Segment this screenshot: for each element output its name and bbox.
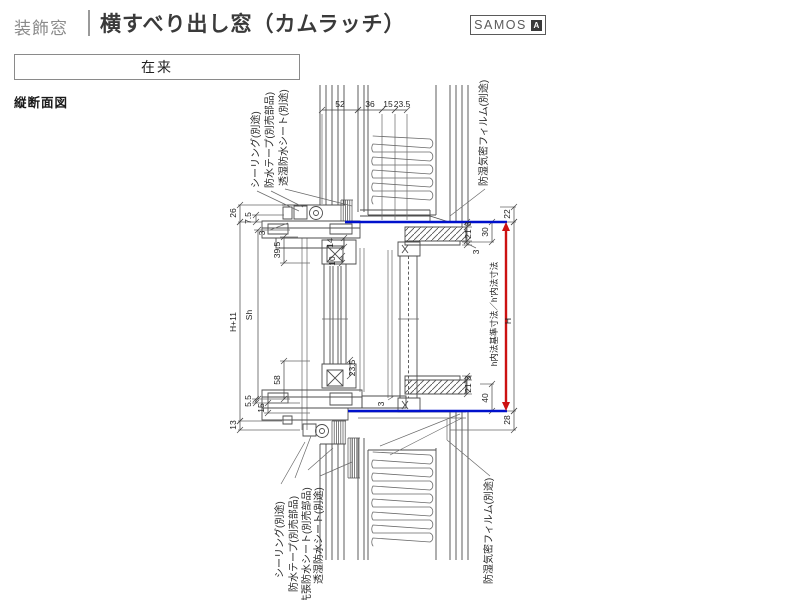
sill-hatch-strip bbox=[332, 421, 346, 444]
screen-top-rail bbox=[398, 242, 420, 256]
dim-label-3a: 3 bbox=[463, 221, 473, 226]
annotation-waterproof-tape-bottom: 防水テープ(別売部品) bbox=[287, 496, 300, 592]
reference-dimension-label: h内法基準寸法／h'内法寸法 bbox=[489, 262, 499, 367]
interior-finish-top bbox=[450, 85, 468, 227]
leader-lines-bottom bbox=[281, 420, 490, 484]
dim-label-58: 58 bbox=[272, 375, 282, 385]
dim-label-23-5-mid: 23.5 bbox=[347, 359, 357, 376]
insulation-batt-bottom bbox=[372, 452, 433, 546]
leader-lines-top bbox=[257, 189, 485, 216]
screen-mesh-panel bbox=[400, 256, 417, 398]
head-hatch-strip bbox=[341, 200, 353, 221]
annotation-sealing-top: シーリング(別途) bbox=[249, 111, 262, 188]
dim-label-3b: 3 bbox=[471, 249, 481, 254]
dim-left-7-5 bbox=[253, 212, 259, 225]
dim-label-5-5: 5.5 bbox=[243, 395, 253, 407]
frame-head-assembly bbox=[262, 205, 460, 248]
waterproof-tape-block-bottom bbox=[303, 424, 316, 436]
page: 装飾窓 横すべり出し窓（カムラッチ） SAMOS A 在来 縦断面図 bbox=[0, 0, 800, 600]
dim-left-Sh bbox=[255, 227, 261, 402]
dim-label-H-plus-11: H+11 bbox=[228, 312, 238, 332]
dim-label-52: 52 bbox=[335, 99, 345, 109]
dim-label-3-mid: 3 bbox=[376, 401, 386, 406]
dim-label-23-5: 23.5 bbox=[394, 99, 411, 109]
interior-trim-bottom bbox=[405, 376, 466, 394]
annotation-breathable-sheet-bottom: 透湿防水シート(別途) bbox=[312, 487, 325, 584]
dim-label-40: 40 bbox=[480, 393, 490, 403]
annotation-sealing-bottom: シーリング(別途) bbox=[273, 501, 286, 578]
dim-label-H: H bbox=[503, 318, 513, 324]
dim-label-15-left: 15 bbox=[256, 403, 266, 413]
inner-height-reference-arrow bbox=[502, 222, 510, 411]
insulation-batt-top bbox=[372, 136, 433, 204]
interior-finish-bottom bbox=[450, 412, 468, 560]
sash-glazing bbox=[324, 264, 346, 364]
dim-label-39-5: 39.5 bbox=[272, 241, 282, 258]
sealing-backer-top bbox=[310, 207, 323, 220]
dim-label-14: 14 bbox=[325, 238, 335, 248]
annotation-vapor-barrier-top: 防湿気密フィルム(別途) bbox=[477, 80, 490, 186]
annotation-vapor-barrier-bottom: 防湿気密フィルム(別途) bbox=[482, 478, 495, 584]
waterproof-tape-block-top bbox=[294, 206, 307, 219]
annotation-breathable-sheet-top: 透湿防水シート(別途) bbox=[277, 89, 290, 186]
dim-label-21a: 21 bbox=[463, 229, 473, 239]
dim-label-13: 13 bbox=[228, 420, 238, 430]
dim-label-3c: 3 bbox=[463, 375, 473, 380]
dim-right-H bbox=[511, 219, 517, 414]
dim-label-3-left: 3 bbox=[257, 230, 267, 235]
dim-label-30: 30 bbox=[480, 227, 490, 237]
jamb-elevation-lines bbox=[302, 238, 392, 430]
section-drawing: 52 36 15 23.5 26 7.5 3 39.5 Sh H+11 58 5… bbox=[0, 0, 800, 600]
dim-label-28: 28 bbox=[502, 415, 512, 425]
dim-label-22: 22 bbox=[502, 209, 512, 219]
dim-label-36: 36 bbox=[365, 99, 375, 109]
annotation-waterproof-tape-top: 防水テープ(別売部品) bbox=[263, 92, 276, 188]
dim-label-15: 15 bbox=[383, 99, 393, 109]
dim-label-26: 26 bbox=[228, 208, 238, 218]
dim-label-10: 10 bbox=[327, 256, 337, 266]
dim-label-Sh: Sh bbox=[244, 310, 254, 321]
dim-label-7-5: 7.5 bbox=[243, 212, 253, 224]
dim-label-21b: 21 bbox=[463, 383, 473, 393]
sealing-backer-bottom bbox=[316, 425, 329, 438]
annotation-pre-applied-sheet-bottom: 先張防水シート(別売部品) bbox=[300, 487, 313, 600]
